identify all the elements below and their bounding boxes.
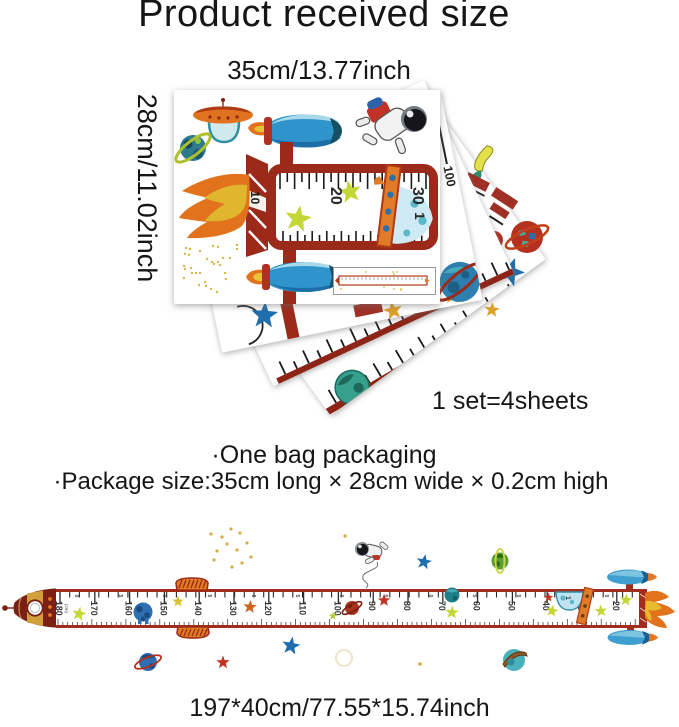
svg-text:5: 5 [117, 595, 123, 598]
svg-text:30: 30 [409, 187, 426, 205]
svg-text:60: 60 [472, 601, 482, 611]
svg-text:120: 120 [263, 601, 273, 616]
svg-text:0: 0 [515, 595, 521, 598]
svg-text:1: 1 [412, 212, 428, 220]
svg-text:20: 20 [611, 601, 621, 611]
svg-text:5: 5 [294, 595, 300, 598]
svg-text:0: 0 [250, 595, 256, 598]
svg-text:80: 80 [402, 601, 412, 611]
svg-text:140: 140 [193, 601, 203, 616]
svg-text:180: 180 [54, 601, 64, 616]
svg-text:150: 150 [158, 601, 168, 616]
svg-text:130: 130 [228, 601, 238, 616]
svg-text:110: 110 [298, 601, 308, 615]
svg-text:0: 0 [603, 595, 609, 598]
svg-text:10: 10 [248, 191, 262, 205]
svg-text:100: 100 [440, 165, 458, 188]
svg-text:0: 0 [73, 595, 79, 598]
svg-text:20: 20 [327, 187, 344, 205]
svg-text:5: 5 [206, 595, 212, 598]
svg-text:0: 0 [338, 595, 344, 598]
svg-text:0: 0 [161, 595, 167, 598]
svg-text:50: 50 [506, 601, 516, 611]
svg-text:70: 70 [437, 601, 447, 611]
svg-text:160: 160 [124, 601, 134, 616]
svg-text:0: 0 [427, 595, 433, 598]
svg-text:(cm): (cm) [64, 604, 69, 613]
svg-text:90: 90 [367, 601, 377, 611]
svg-text:1: 1 [564, 596, 571, 600]
svg-text:5: 5 [471, 595, 477, 598]
svg-text:170: 170 [89, 601, 99, 616]
svg-text:100: 100 [332, 601, 342, 616]
